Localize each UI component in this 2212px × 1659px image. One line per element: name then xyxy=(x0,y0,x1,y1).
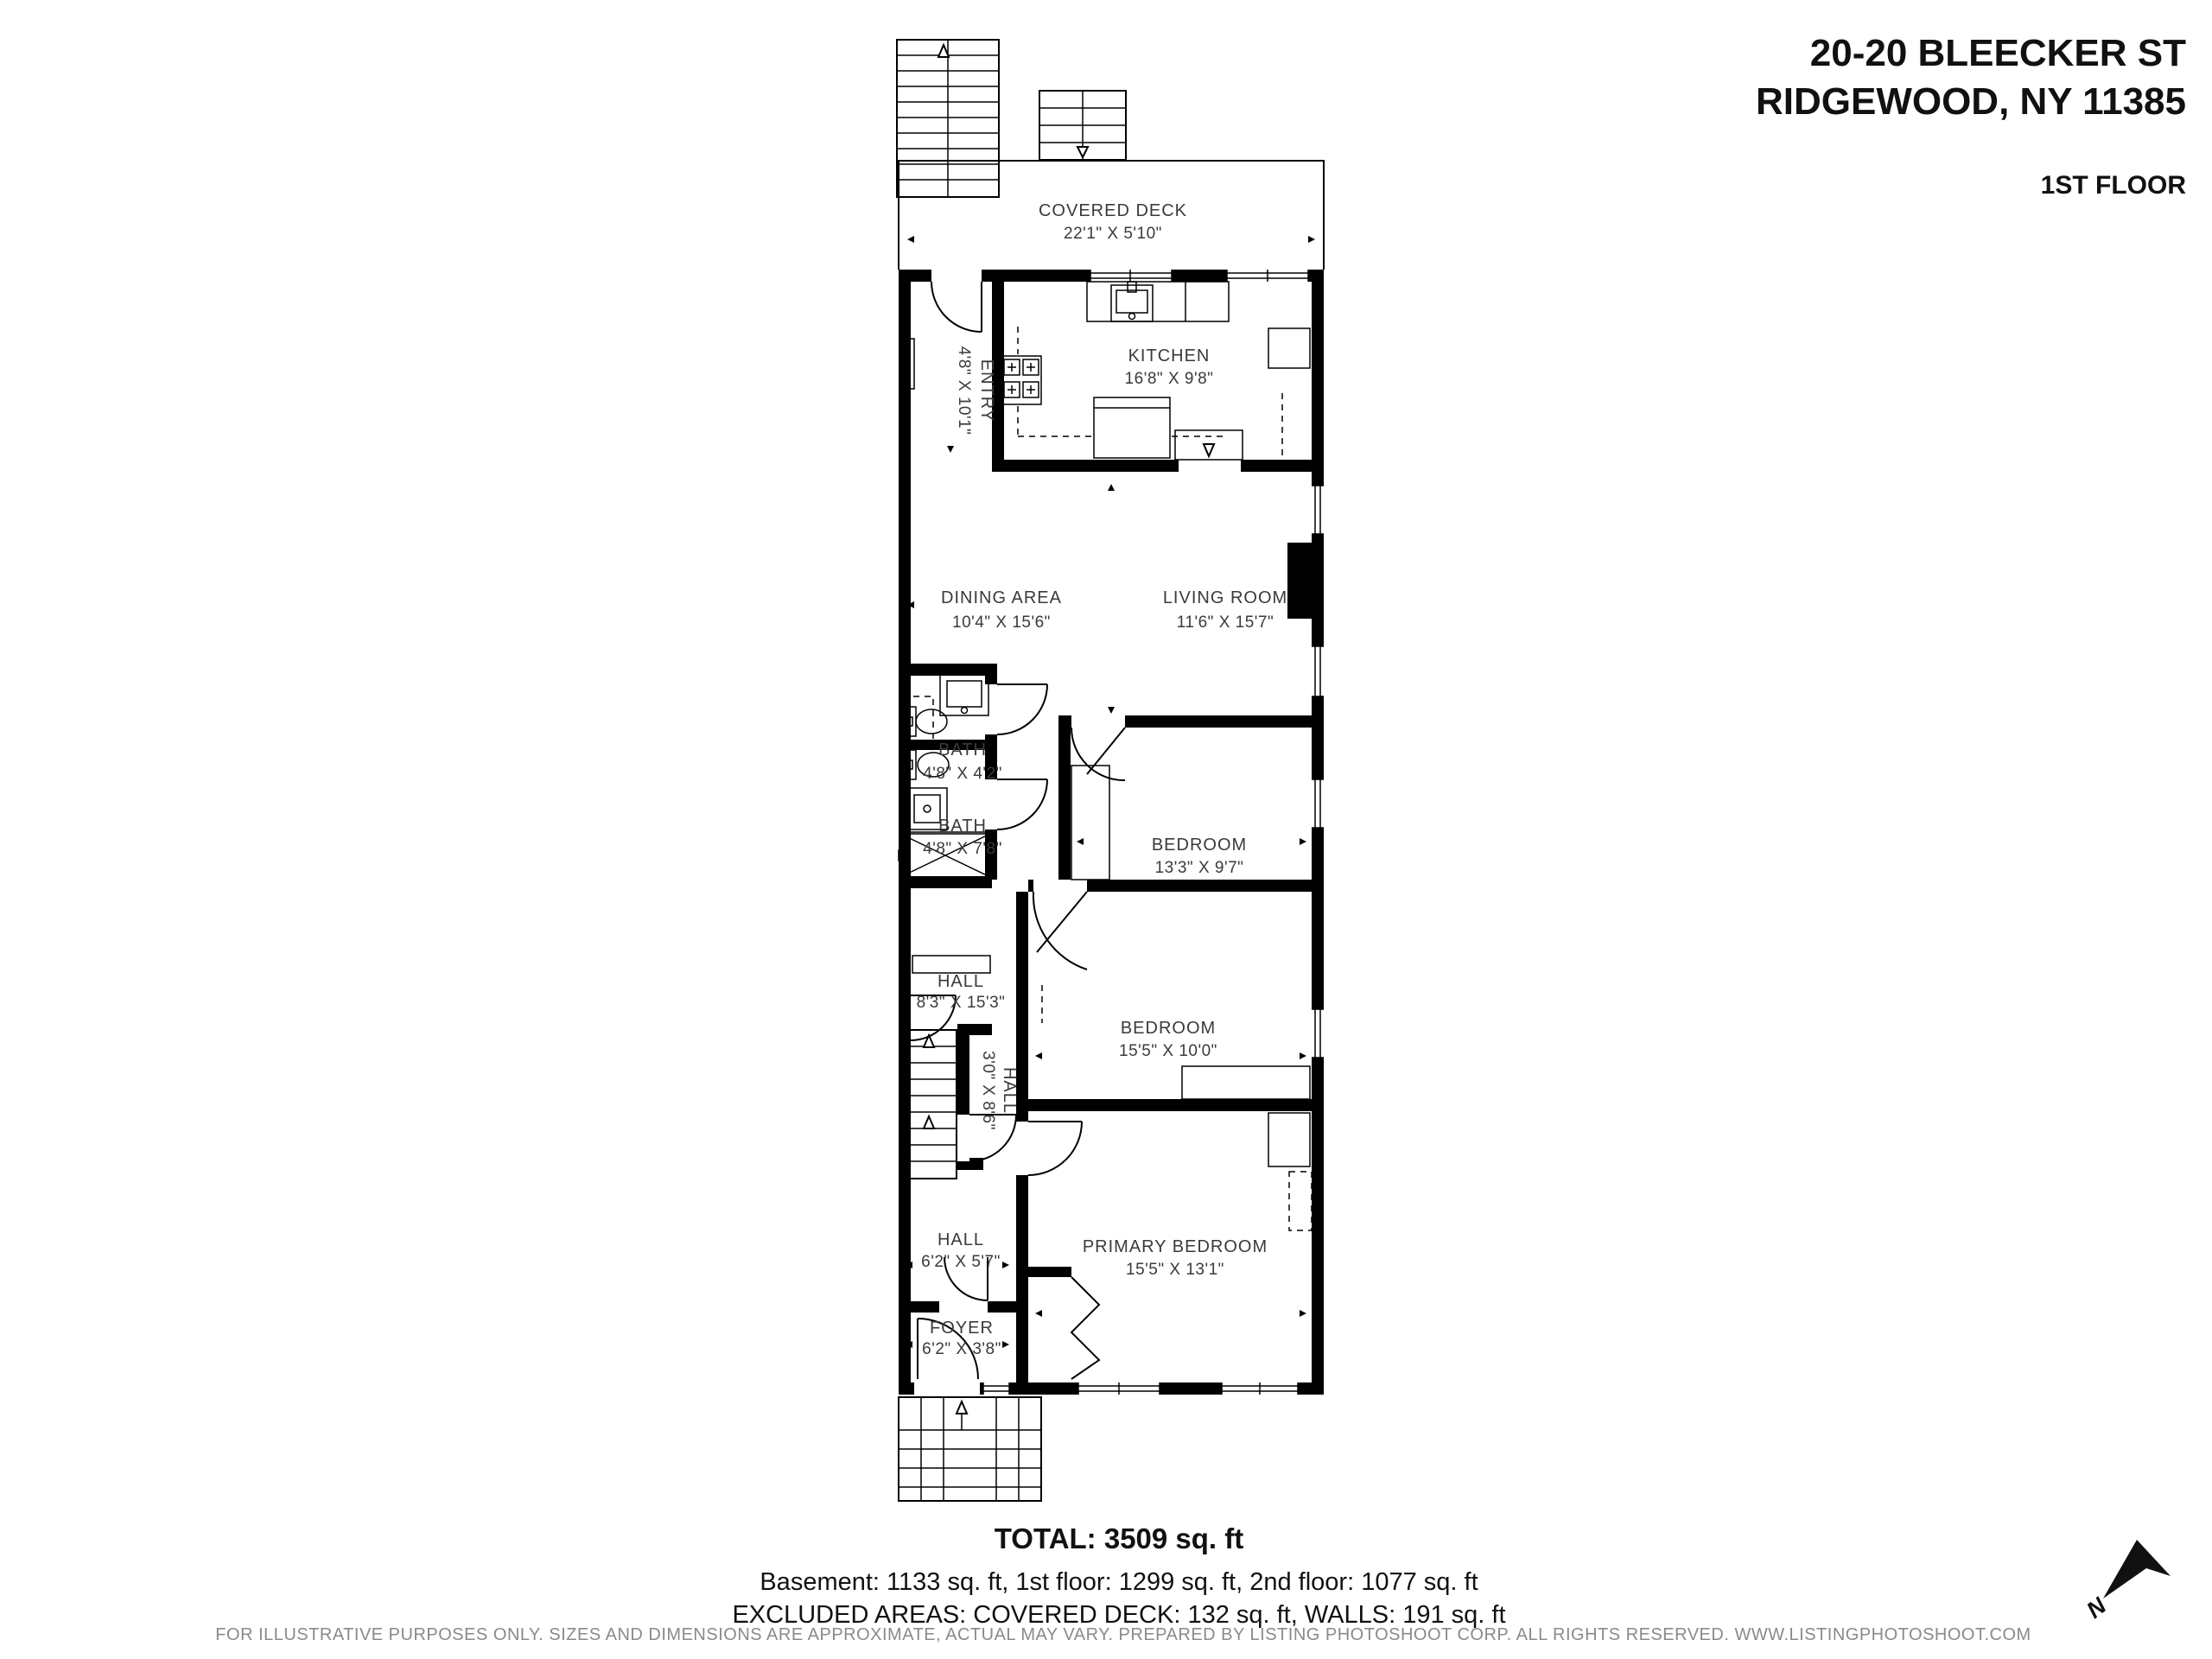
room-label-entry: ENTRY xyxy=(977,359,996,422)
room-dims-bath1: 4'8" X 4'2" xyxy=(923,765,1002,783)
room-label-dining: DINING AREA xyxy=(941,588,1062,607)
room-label-hall2: HALL xyxy=(1000,1067,1019,1114)
room-dims-hall2: 3'0" X 8'6" xyxy=(979,1051,997,1130)
room-dims-bedroom2: 15'5" X 10'0" xyxy=(1119,1042,1217,1060)
room-label-bath2: BATH xyxy=(938,817,987,836)
room-labels: COVERED DECK 22'1" X 5'10" KITCHEN 16'8"… xyxy=(917,201,1288,1358)
bath1-door-icon xyxy=(997,684,1047,734)
address-line-2: RIDGEWOOD, NY 11385 xyxy=(1756,80,2186,123)
floor-plan-svg: COVERED DECK 22'1" X 5'10" KITCHEN 16'8"… xyxy=(0,0,2212,1659)
room-dims-covered-deck: 22'1" X 5'10" xyxy=(1064,225,1162,243)
kitchen-counter-icon xyxy=(1087,282,1229,321)
room-label-living: LIVING ROOM xyxy=(1163,588,1287,607)
room-label-foyer: FOYER xyxy=(930,1319,994,1338)
floor-label: 1ST FLOOR xyxy=(2041,171,2187,200)
floor-breakdown-text: Basement: 1133 sq. ft, 1st floor: 1299 s… xyxy=(760,1568,1478,1596)
header: 20-20 BLEECKER ST RIDGEWOOD, NY 11385 1S… xyxy=(1756,32,2186,200)
room-dims-kitchen: 16'8" X 9'8" xyxy=(1125,370,1214,388)
room-label-covered-deck: COVERED DECK xyxy=(1039,201,1187,220)
room-dims-hall1: 8'3" X 15'3" xyxy=(917,994,1006,1012)
entry-door-icon xyxy=(931,282,982,332)
bedroom1-closet-icon xyxy=(1071,766,1109,880)
windows xyxy=(983,270,1324,1395)
room-dims-hall3: 6'2" X 5'7" xyxy=(921,1253,1001,1271)
room-label-hall3: HALL xyxy=(938,1230,984,1249)
bedroom2-dresser-icon xyxy=(1182,1066,1310,1099)
floor-plan-page: COVERED DECK 22'1" X 5'10" KITCHEN 16'8"… xyxy=(0,0,2212,1659)
kitchen-island-icon xyxy=(1094,397,1170,458)
bath1-fixtures xyxy=(902,674,988,741)
footer: TOTAL: 3509 sq. ft Basement: 1133 sq. ft… xyxy=(215,1522,2031,1644)
compass: N xyxy=(2082,1540,2171,1624)
room-label-primary: PRIMARY BEDROOM xyxy=(1083,1237,1268,1256)
bath2-door-icon xyxy=(997,779,1047,829)
room-dims-dining: 10'4" X 15'6" xyxy=(952,613,1051,632)
room-label-kitchen: KITCHEN xyxy=(1128,346,1211,365)
stove-icon xyxy=(1001,356,1041,404)
deck-stairs-icon xyxy=(1039,91,1126,160)
total-area-text: TOTAL: 3509 sq. ft xyxy=(995,1522,1244,1554)
bedroom2-door-icon xyxy=(1033,892,1087,969)
kitchen-basement-stair-icon xyxy=(1175,430,1243,460)
primary-closet-icon xyxy=(1268,1113,1310,1166)
porch-stairs-icon xyxy=(899,1397,1041,1501)
room-label-bath1: BATH xyxy=(938,741,987,760)
address-line-1: 20-20 BLEECKER ST xyxy=(1810,32,2186,74)
room-label-bedroom2: BEDROOM xyxy=(1121,1019,1216,1038)
north-label: N xyxy=(2082,1592,2111,1624)
primary-dresser-icon xyxy=(1289,1172,1312,1230)
chimney-block xyxy=(1287,543,1324,619)
room-dims-bedroom1: 13'3" X 9'7" xyxy=(1155,859,1244,877)
hall-ledge-icon xyxy=(912,956,990,973)
room-dims-foyer: 6'2" X 3'8" xyxy=(922,1340,1001,1358)
primary-door-icon xyxy=(1028,1122,1082,1175)
room-label-hall1: HALL xyxy=(938,972,984,991)
north-arrow-icon xyxy=(2103,1540,2171,1599)
room-dims-living: 11'6" X 15'7" xyxy=(1177,613,1274,632)
disclaimer-text: FOR ILLUSTRATIVE PURPOSES ONLY. SIZES AN… xyxy=(215,1625,2031,1644)
bedroom1-door-icon xyxy=(1071,728,1125,780)
kitchen-cabinet-icon xyxy=(1268,328,1310,368)
room-label-bedroom1: BEDROOM xyxy=(1152,836,1247,855)
room-dims-entry: 4'8" X 10'1" xyxy=(955,346,973,435)
bifold-closet-doors-icon xyxy=(1071,1277,1099,1379)
room-dims-bath2: 4'8" X 7'8" xyxy=(923,840,1002,858)
room-dims-primary: 15'5" X 13'1" xyxy=(1126,1261,1224,1279)
exterior-stairs-icon xyxy=(897,40,999,197)
